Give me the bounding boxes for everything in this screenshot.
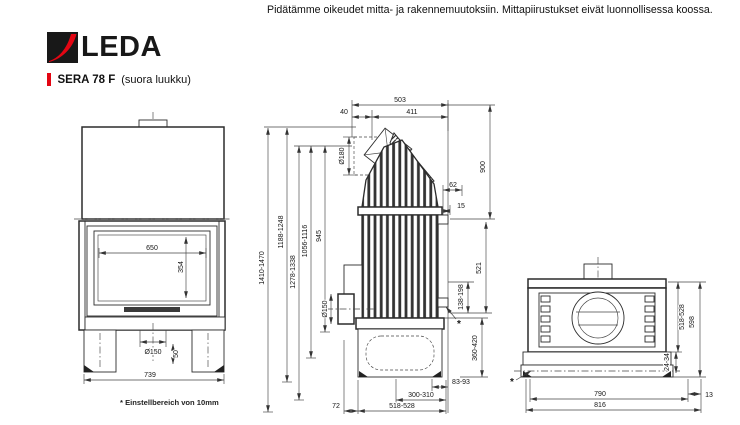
rear-flue-collar [572, 292, 624, 344]
dim-rear-total-height: 598 [689, 316, 696, 328]
dim-side-h3: 1278-1338 [290, 255, 297, 289]
dim-side-depth-total: 503 [394, 97, 406, 104]
dim-side-15: 15 [457, 203, 465, 210]
dim-side-h2: 1188-1248 [278, 215, 285, 248]
dim-side-83-93: 83-93 [452, 379, 470, 386]
dim-front-glass-width: 650 [146, 245, 158, 252]
rear-asterisk-mark: * [510, 377, 514, 388]
dim-side-h5: 945 [316, 230, 323, 242]
dim-side-base-height: 360-420 [472, 335, 479, 361]
dim-side-flue-offset: 40 [340, 109, 348, 116]
dim-side-rear-flue-height: 138-198 [458, 284, 465, 310]
dim-rear-plinth-height: 24-34 [664, 353, 671, 371]
dim-side-62: 62 [449, 182, 457, 189]
dim-side-rear-flue-diameter: Ø150 [322, 300, 329, 317]
dim-rear-total-width: 816 [594, 402, 606, 409]
technical-drawing: 650 354 Ø150 50 739 1410-1470 1188-1248 … [0, 0, 740, 425]
dim-front-total-width: 739 [144, 372, 156, 379]
side-view: 1410-1470 1188-1248 1278-1338 1056-1116 … [259, 97, 495, 414]
dim-side-521: 521 [476, 262, 483, 274]
dim-side-72: 72 [332, 403, 340, 410]
side-asterisk-mark: * [457, 319, 461, 330]
dim-rear-inner-width: 790 [594, 391, 606, 398]
dim-front-flue-diameter: Ø150 [144, 349, 161, 356]
door-handle [124, 307, 180, 312]
dim-rear-box-height: 518-528 [679, 304, 686, 330]
dim-side-flue-top-diameter: Ø180 [339, 147, 346, 164]
front-view: 650 354 Ø150 50 739 [74, 112, 230, 384]
dim-side-base-depth: 300-310 [408, 392, 434, 399]
dim-front-foot-adjust: 50 [173, 350, 180, 358]
dim-side-900: 900 [480, 161, 487, 173]
rear-view: 518-528 598 24-34 790 816 13 * [510, 257, 713, 413]
dim-side-h1: 1410-1470 [259, 251, 266, 285]
dim-front-glass-height: 354 [178, 261, 185, 273]
dim-rear-13: 13 [705, 392, 713, 399]
dim-side-base-total: 518-528 [389, 403, 415, 410]
dim-side-depth-flue: 411 [406, 109, 417, 116]
footnote-text: * Einstellbereich von 10mm [120, 398, 219, 407]
dim-side-h4: 1056-1116 [302, 225, 309, 258]
